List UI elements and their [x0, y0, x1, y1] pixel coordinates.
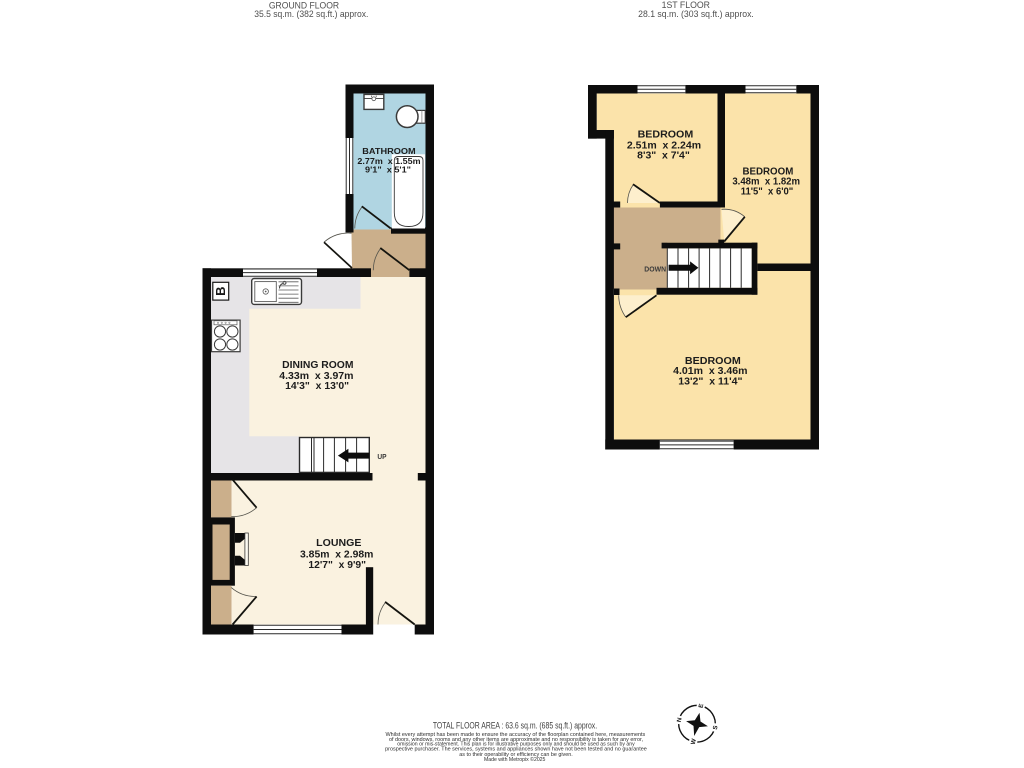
svg-text:9'1" x 5'1": 9'1" x 5'1"	[365, 165, 411, 174]
svg-text:B: B	[213, 287, 228, 296]
svg-text:DINING ROOM: DINING ROOM	[282, 360, 353, 371]
svg-text:LOUNGE: LOUNGE	[316, 538, 361, 549]
svg-text:13'2" x 11'4": 13'2" x 11'4"	[678, 376, 742, 387]
svg-text:35.5 sq.m. (382 sq.ft.) approx: 35.5 sq.m. (382 sq.ft.) approx.	[254, 9, 368, 19]
svg-text:DOWN: DOWN	[644, 264, 666, 273]
svg-text:3.85m x 2.98m: 3.85m x 2.98m	[300, 549, 373, 560]
svg-text:28.1 sq.m. (303 sq.ft.) approx: 28.1 sq.m. (303 sq.ft.) approx.	[638, 9, 754, 19]
svg-text:BEDROOM: BEDROOM	[638, 130, 694, 141]
svg-text:Made with Metropix ©2025: Made with Metropix ©2025	[484, 756, 546, 763]
svg-text:11'5" x 6'0": 11'5" x 6'0"	[741, 187, 794, 198]
svg-text:UP: UP	[377, 452, 386, 461]
svg-text:12'7" x 9'9": 12'7" x 9'9"	[308, 560, 366, 571]
svg-text:14'3" x 13'0": 14'3" x 13'0"	[285, 381, 349, 392]
svg-text:8'3" x 7'4": 8'3" x 7'4"	[637, 151, 690, 162]
svg-text:BATHROOM: BATHROOM	[362, 147, 415, 156]
svg-text:TOTAL FLOOR AREA : 63.6 sq.m.: TOTAL FLOOR AREA : 63.6 sq.m. (685 sq.ft…	[433, 720, 597, 730]
